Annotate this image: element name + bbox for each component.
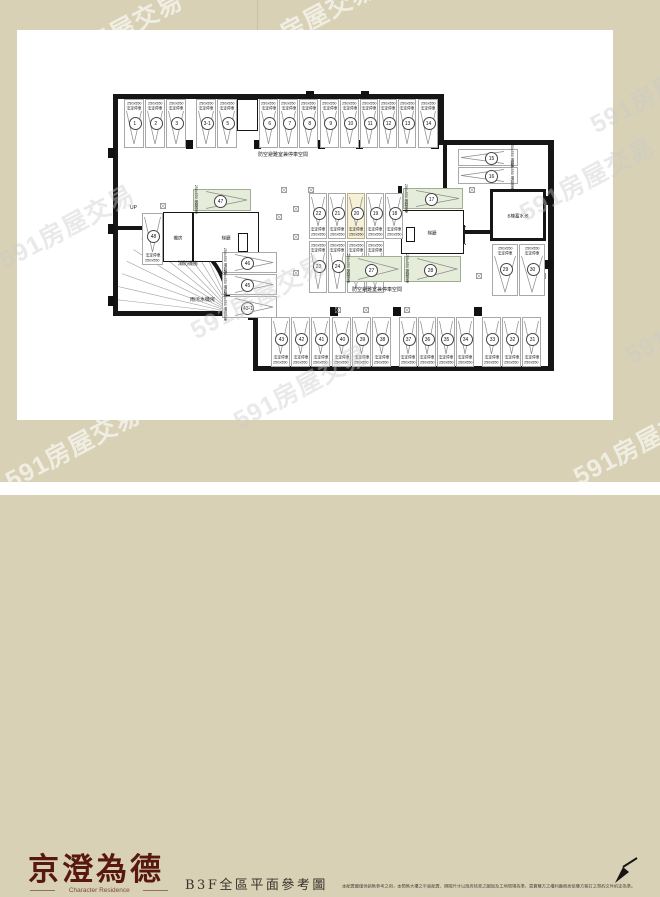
- stall-number: 7: [283, 117, 296, 130]
- column-marker-icon: [293, 263, 299, 269]
- room: [406, 227, 415, 242]
- stall-number: 23: [313, 260, 326, 273]
- parking-stall-8: 250x550法定停車8: [299, 99, 318, 148]
- stall-number: 3: [171, 117, 184, 130]
- stall-number: 1: [129, 117, 142, 130]
- column-marker-icon: [281, 180, 287, 186]
- stall-label: 250x550 獎勵停車: [195, 190, 200, 210]
- parking-stall-30: 250x550法定停車30: [519, 244, 545, 296]
- stall-chevron-icon: [358, 258, 399, 285]
- stall-number: 43-1: [241, 302, 254, 315]
- stall-number: 19: [370, 207, 383, 220]
- pillar: [306, 91, 314, 98]
- stall-chevron-icon: [461, 169, 505, 187]
- pillar: [474, 307, 482, 316]
- column-marker-icon: [308, 180, 314, 186]
- stall-label: 250x550法定停車: [300, 101, 317, 111]
- column-marker-icon: [160, 196, 166, 202]
- stall-label: 250x550法定停車: [167, 101, 185, 111]
- stall-number: 10: [344, 117, 357, 130]
- stall-label: 250x550法定停車: [197, 101, 215, 111]
- stall-number: 27: [365, 264, 378, 277]
- pillar: [393, 307, 401, 316]
- pillar: [108, 224, 115, 234]
- parking-stall-11: 250x550法定停車11: [360, 99, 378, 148]
- stall-number: 3-1: [201, 117, 214, 130]
- parking-stall-20: 法定停車250x55020: [347, 193, 365, 239]
- parking-stall-29: 250x550法定停車29: [492, 244, 518, 296]
- stall-label: 250x550 獎勵停車: [405, 189, 410, 208]
- pillar: [108, 296, 115, 306]
- parking-stall-10: 250x550法定停車10: [340, 99, 359, 148]
- wall: [253, 313, 258, 369]
- parking-stall-24: 250x550法定停車24: [328, 241, 346, 293]
- parking-stall-27: 250x550 獎勵停車27: [345, 256, 402, 282]
- parking-stall-38: 法定停車250x55038: [372, 317, 391, 367]
- parking-stall-16: 250x550 增設停車16: [458, 167, 518, 184]
- room-water-tank: B棟蓄水池: [490, 189, 546, 241]
- parking-stall-7: 250x550法定停車7: [279, 99, 298, 148]
- stall-number: 11: [364, 117, 377, 130]
- brand-logo: 京澄為德: [28, 844, 164, 889]
- wall: [443, 145, 447, 193]
- parking-stall-34: 法定停車250x55034: [456, 317, 474, 367]
- room-label: 梯廳: [428, 229, 437, 236]
- stall-number: 14: [423, 117, 436, 130]
- parking-stall-15: 250x550 增設停車15: [458, 149, 518, 166]
- parking-stall-33: 法定停車250x55033: [482, 317, 501, 367]
- pillar: [545, 260, 553, 269]
- pillar: [545, 196, 553, 205]
- stall-number: 20: [351, 207, 364, 220]
- room-label: B棟蓄水池: [507, 212, 528, 219]
- stall-number: 22: [313, 207, 326, 220]
- parking-stall-14: 250x550法定停車14: [418, 99, 438, 148]
- stall-label: 250x550法定停車: [260, 101, 277, 111]
- column-marker-icon: [335, 300, 341, 306]
- parking-stall-42: 法定停車250x55042: [291, 317, 310, 367]
- stall-number: 30: [527, 263, 540, 276]
- parking-stall-32: 法定停車250x55032: [502, 317, 521, 367]
- wall: [464, 230, 492, 234]
- room-label: 梯廳: [221, 234, 230, 241]
- parking-stall-6: 250x550法定停車6: [259, 99, 278, 148]
- room: [237, 99, 258, 131]
- column-marker-icon: [293, 199, 299, 205]
- parking-stall-31: 法定停車250x55031: [522, 317, 541, 367]
- parking-stall-1: 250x550法定停車1: [124, 99, 144, 148]
- room: [238, 233, 248, 252]
- stall-number: 12: [383, 117, 396, 130]
- parking-stall-2: 250x550法定停車2: [145, 99, 165, 148]
- parking-stall-18: 法定停車250x55018: [385, 193, 403, 239]
- stall-label: 250x550法定停車: [348, 243, 364, 253]
- room-machine-room: 機房: [163, 212, 193, 262]
- stall-number: 2: [150, 117, 163, 130]
- wall: [438, 94, 444, 145]
- parking-stall-5: 250x550法定停車5: [217, 99, 237, 148]
- stall-label: 250x550法定停車: [419, 101, 437, 111]
- parking-stall-22: 法定停車250x55022: [309, 193, 327, 239]
- stall-label: 250x550法定停車: [280, 101, 297, 111]
- stall-number: 28: [424, 264, 437, 277]
- wall: [438, 140, 554, 145]
- stall-label: 250x550法定停車: [321, 101, 338, 111]
- wall: [548, 140, 554, 371]
- stall-number: 48: [147, 230, 160, 243]
- stall-number: 36: [422, 333, 435, 346]
- parking-stall-41: 法定停車250x55041: [311, 317, 330, 367]
- parking-stall-12: 250x550法定停車12: [379, 99, 397, 148]
- parking-stall-37: 法定停車250x55037: [399, 317, 417, 367]
- parking-stall-9: 250x550法定停車9: [320, 99, 339, 148]
- wall: [113, 94, 118, 316]
- plan-caption: B3F全區平面參考圖: [185, 874, 328, 893]
- stall-number: 47: [214, 195, 227, 208]
- stall-number: 34: [460, 333, 473, 346]
- parking-stall-23: 250x550法定停車23: [309, 241, 327, 293]
- footer: 京澄為德 Character Residence B3F全區平面參考圖 本配置圖…: [0, 420, 660, 482]
- parking-stall-13: 250x550法定停車13: [398, 99, 416, 148]
- parking-stall-19: 法定停車250x55019: [366, 193, 384, 239]
- plan-text-shelter: 防空避難室兼停車空間: [352, 284, 452, 302]
- parking-stall-3: 250x550法定停車3: [166, 99, 186, 148]
- parking-stall-46: 250x550 增設停車46: [222, 252, 277, 273]
- stall-chevron-icon: [206, 191, 248, 214]
- brand-logo-subtitle: Character Residence: [30, 885, 168, 895]
- parking-stall-35: 法定停車250x55035: [437, 317, 455, 367]
- stall-number: 6: [263, 117, 276, 130]
- stall-label: 250x550法定停車: [310, 243, 326, 253]
- parking-stall-36: 法定停車250x55036: [418, 317, 436, 367]
- parking-stall-45: 250x550 增設停車45: [222, 274, 277, 295]
- stall-number: 21: [332, 207, 345, 220]
- stall-label: 250x550法定停車: [329, 243, 345, 253]
- stall-number: 18: [389, 207, 402, 220]
- stall-label: 250x550法定停車: [218, 101, 236, 111]
- stall-label: 250x550 獎勵停車: [347, 257, 352, 281]
- stall-label: 250x550法定停車: [341, 101, 358, 111]
- brush-icon: [612, 856, 640, 886]
- plan-text-fire_room: 消防機房: [178, 258, 218, 276]
- stall-number: 17: [425, 193, 438, 206]
- stall-label: 250x550法定停車: [493, 246, 517, 256]
- stall-number: 35: [441, 333, 454, 346]
- pillar: [108, 148, 115, 158]
- stall-label: 250x550法定停車: [520, 246, 544, 256]
- stall-number: 5: [222, 117, 235, 130]
- plan-text-sewage_room: 雨污水機房: [190, 294, 240, 312]
- pillar: [186, 140, 193, 149]
- stall-chevron-icon: [416, 190, 460, 212]
- stall-number: 37: [403, 333, 416, 346]
- column-marker-icon: [476, 266, 482, 272]
- pillar: [361, 91, 369, 98]
- parking-stall-17: 250x550 獎勵停車17: [403, 188, 463, 209]
- stall-label: 250x550法定停車: [125, 101, 143, 111]
- parking-stall-3-1: 250x550法定停車3-1: [196, 99, 216, 148]
- stall-number: 13: [402, 117, 415, 130]
- room-label: 機房: [173, 234, 182, 241]
- stall-label: 250x550法定停車: [399, 101, 415, 111]
- parking-stall-40: 法定停車250x55040: [332, 317, 351, 367]
- parking-stall-21: 法定停車250x55021: [328, 193, 346, 239]
- column-marker-icon: [276, 207, 282, 213]
- stall-label: 250x550法定停車: [380, 101, 396, 111]
- stall-label: 250x550法定停車: [146, 101, 164, 111]
- parking-stall-43: 法定停車250x55043: [271, 317, 290, 367]
- stall-label: 250x550 獎勵停車: [406, 257, 411, 281]
- parking-stall-28: 250x550 獎勵停車28: [404, 256, 461, 282]
- stall-number: 29: [500, 263, 513, 276]
- stall-label: 250x550法定停車: [367, 243, 383, 253]
- parking-stall-47: 250x550 獎勵停車47: [193, 189, 251, 211]
- parking-stall-48: 法定停車250x55048: [142, 213, 163, 265]
- stall-label: 250x550 增設停車: [511, 168, 516, 183]
- parking-stall-39: 法定停車250x55039: [352, 317, 371, 367]
- stall-chevron-icon: [417, 258, 458, 285]
- stall-number: 8: [303, 117, 316, 130]
- plan-text-up: UP: [130, 200, 144, 218]
- column-marker-icon: [293, 227, 299, 233]
- stall-number: 9: [324, 117, 337, 130]
- stall-label: 250x550法定停車: [361, 101, 377, 111]
- plan-text-shelter: 防空避難室兼停車空間: [258, 149, 358, 167]
- stall-number: 24: [332, 260, 345, 273]
